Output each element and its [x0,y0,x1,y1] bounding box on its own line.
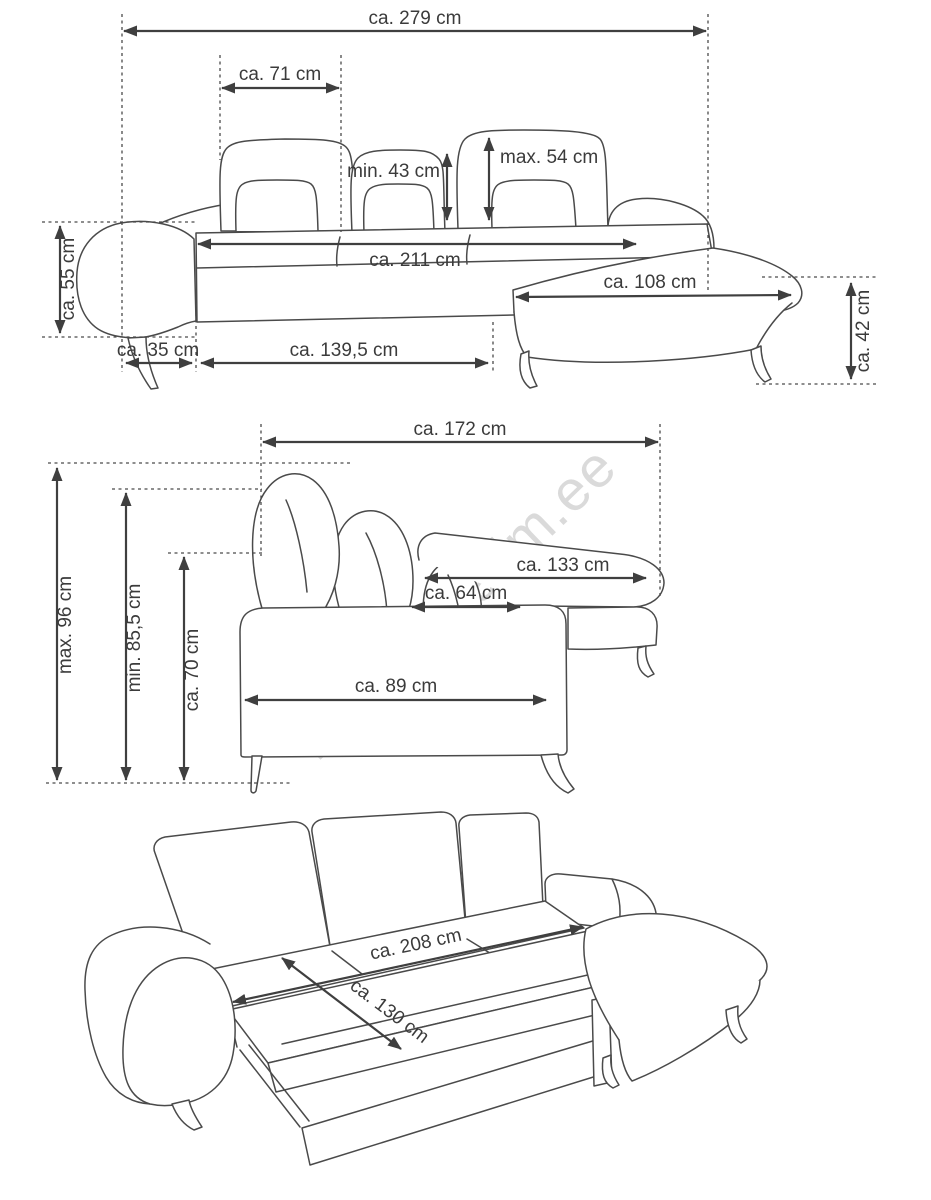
dim-label: ca. 35 cm [117,340,199,361]
dim-label: max. 96 cm [55,576,76,674]
chaise-underbody-side [568,607,657,649]
dim-label: ca. 89 cm [355,676,437,697]
dim-label: ca. 70 cm [182,629,203,711]
dim-seat-depth: ca. 64 cm [412,583,520,607]
diagram-canvas: lambimaailm.ee [0,0,931,1200]
dim-label: min. 43 cm [347,161,440,182]
dim-label: ca. 172 cm [414,419,507,440]
dim-seat-height: ca. 42 cm [851,283,874,379]
pillow-middle [364,184,434,233]
dim-label: ca. 55 cm [58,238,79,320]
dim-label: max. 54 cm [500,147,598,168]
dim-armrest-height: ca. 55 cm [58,226,79,333]
dim-label: ca. 42 cm [853,290,874,372]
dim-label: ca. 211 cm [369,250,461,271]
headrest-cushion-front [253,474,340,613]
left-armrest [77,221,196,338]
dim-label: ca. 279 cm [369,8,462,29]
pillow-left [236,180,318,231]
pillow-right [492,180,576,229]
dim-label: ca. 133 cm [517,555,610,576]
dim-label: min. 85,5 cm [124,584,145,693]
dim-label: ca. 108 cm [604,272,697,293]
dim-label: ca. 64 cm [425,583,507,604]
dim-label: ca. 139,5 cm [290,340,399,361]
sofa-dimensions-diagram: lambimaailm.ee [0,0,931,1200]
dim-label: ca. 71 cm [239,64,321,85]
dim-armrest-width: ca. 35 cm [117,340,199,363]
